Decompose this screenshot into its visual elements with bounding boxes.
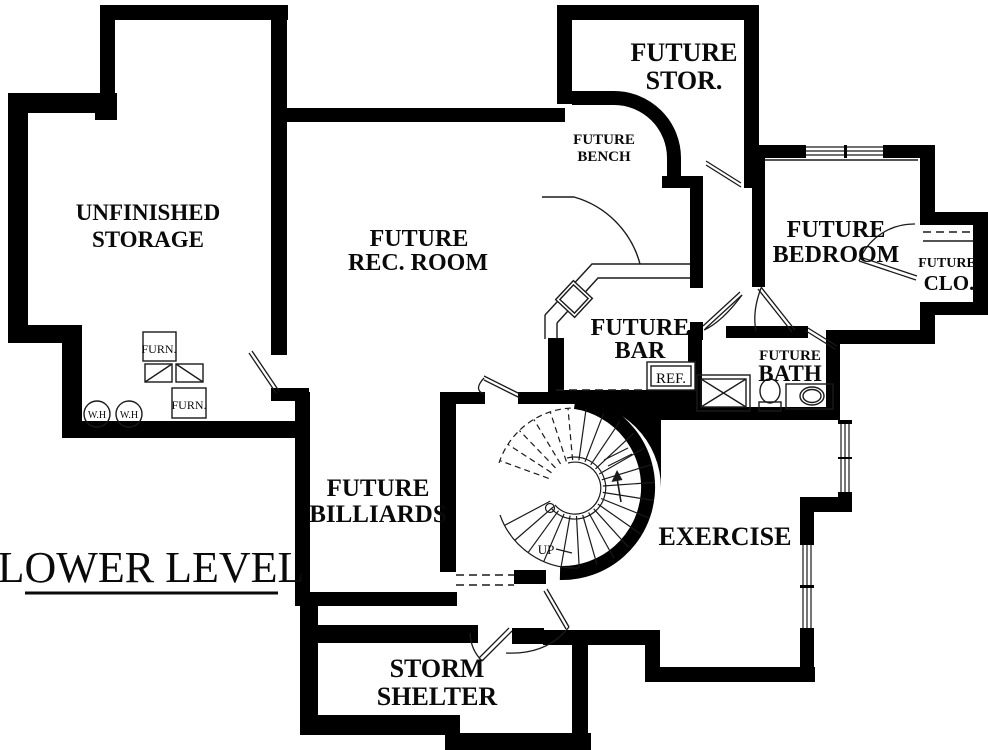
label-wh-1: W.H	[88, 410, 106, 421]
label-storage-2: STORAGE	[92, 227, 204, 252]
coil-units	[145, 364, 203, 382]
future-opening	[456, 575, 514, 585]
label-bench-2: BENCH	[577, 149, 631, 165]
label-bedroom-1: FUTURE	[787, 217, 886, 243]
bar-sink	[556, 281, 593, 318]
bench-outline	[542, 197, 640, 264]
label-storage-1: UNFINISHED	[76, 200, 220, 225]
label-stor-1: FUTURE	[631, 38, 738, 67]
label-exercise: EXERCISE	[659, 522, 792, 551]
label-shelter-2: SHELTER	[377, 682, 498, 711]
label-bench-1: FUTURE	[573, 132, 635, 148]
door-stor-room	[706, 161, 741, 187]
shower	[697, 375, 750, 411]
floor-plan-drawing: UNFINISHED STORAGE FUTURE REC. ROOM FUTU…	[0, 0, 988, 750]
door-storage	[249, 351, 279, 393]
door-hall-bath	[703, 292, 742, 330]
label-rec-1: FUTURE	[370, 226, 469, 252]
stair-outer-wall	[560, 402, 648, 573]
label-furn-2: FURN.	[171, 398, 206, 412]
label-bath-2: BATH	[758, 361, 822, 386]
label-up: UP	[538, 542, 555, 557]
label-wh-2: W.H	[120, 410, 138, 421]
label-ref: REF.	[656, 371, 686, 387]
floor-plan-page: UNFINISHED STORAGE FUTURE REC. ROOM FUTU…	[0, 0, 988, 750]
label-bar-2: BAR	[615, 338, 666, 364]
label-closet-2: CLO.	[924, 271, 975, 295]
door-hall-bedroom	[755, 287, 795, 332]
page-title: LOWER LEVEL	[0, 543, 304, 592]
label-bedroom-2: BEDROOM	[773, 242, 900, 268]
label-closet-1: FUTURE	[918, 256, 976, 271]
label-rec-2: REC. ROOM	[348, 250, 488, 276]
label-shelter-1: STORM	[390, 654, 485, 683]
label-stor-2: STOR.	[646, 66, 723, 95]
vanity-sink	[786, 384, 833, 409]
label-billiards-2: BILLIARDS	[309, 501, 447, 528]
label-billiards-1: FUTURE	[327, 475, 430, 502]
label-furn-1: FURN.	[141, 342, 176, 356]
